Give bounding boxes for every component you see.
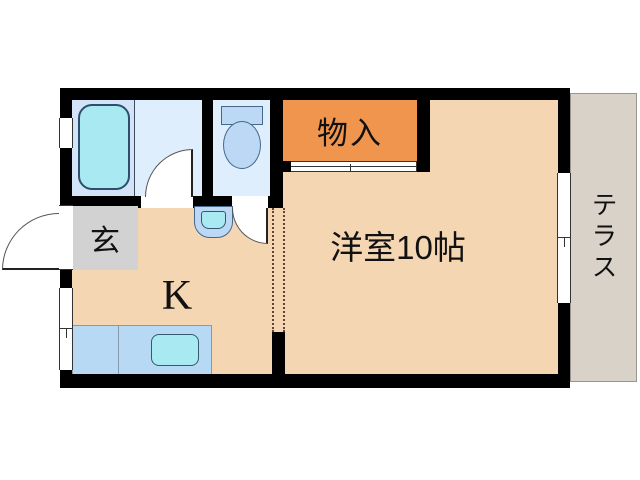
entrance-area: 玄: [72, 206, 138, 270]
entrance-label: 玄: [90, 216, 120, 260]
main-room-label-text: 洋室10帖: [330, 221, 466, 269]
kitchen-sink-icon: [151, 334, 199, 366]
main-room-label: 洋室10帖: [298, 224, 498, 266]
kitchen-counter: [72, 325, 212, 375]
entry-doorway: [59, 205, 73, 270]
sliding-door-tick: [350, 164, 351, 172]
counter-divider: [118, 326, 119, 374]
entry-door-arc-icon: [2, 213, 59, 270]
closet-label: 物入: [317, 108, 383, 153]
wall-toilet-right: [270, 88, 283, 208]
terrace-area: テラス: [570, 93, 637, 382]
main-room-window: [557, 173, 571, 303]
kitchen-label: K: [147, 272, 207, 320]
window-tick-v: [564, 237, 565, 247]
floor-plan: テラス 物入 玄: [0, 0, 640, 480]
toilet-doorway: [232, 196, 268, 208]
kitchen-label-text: K: [162, 272, 192, 320]
terrace-label: テラス: [585, 191, 622, 284]
bathroom-doorway: [141, 196, 193, 208]
room-divider-dotted-right: [283, 208, 285, 332]
bathtub-icon: [78, 104, 130, 190]
wall-top: [60, 88, 570, 100]
closet-area: 物入: [283, 100, 417, 161]
bathroom-window: [59, 118, 73, 148]
closet-sliding-door: [283, 161, 417, 172]
wall-toilet-left: [202, 100, 213, 208]
wall-bottom: [60, 374, 570, 388]
kitchen-window: [59, 288, 73, 370]
closet-door-cap: [283, 161, 291, 172]
wash-basin-bowl: [201, 211, 226, 229]
room-divider-dotted-left: [272, 208, 274, 332]
wall-closet-right: [417, 88, 430, 172]
toilet-bowl-icon: [223, 121, 261, 169]
window-tick-v: [66, 328, 67, 338]
wash-basin-icon: [194, 206, 233, 238]
